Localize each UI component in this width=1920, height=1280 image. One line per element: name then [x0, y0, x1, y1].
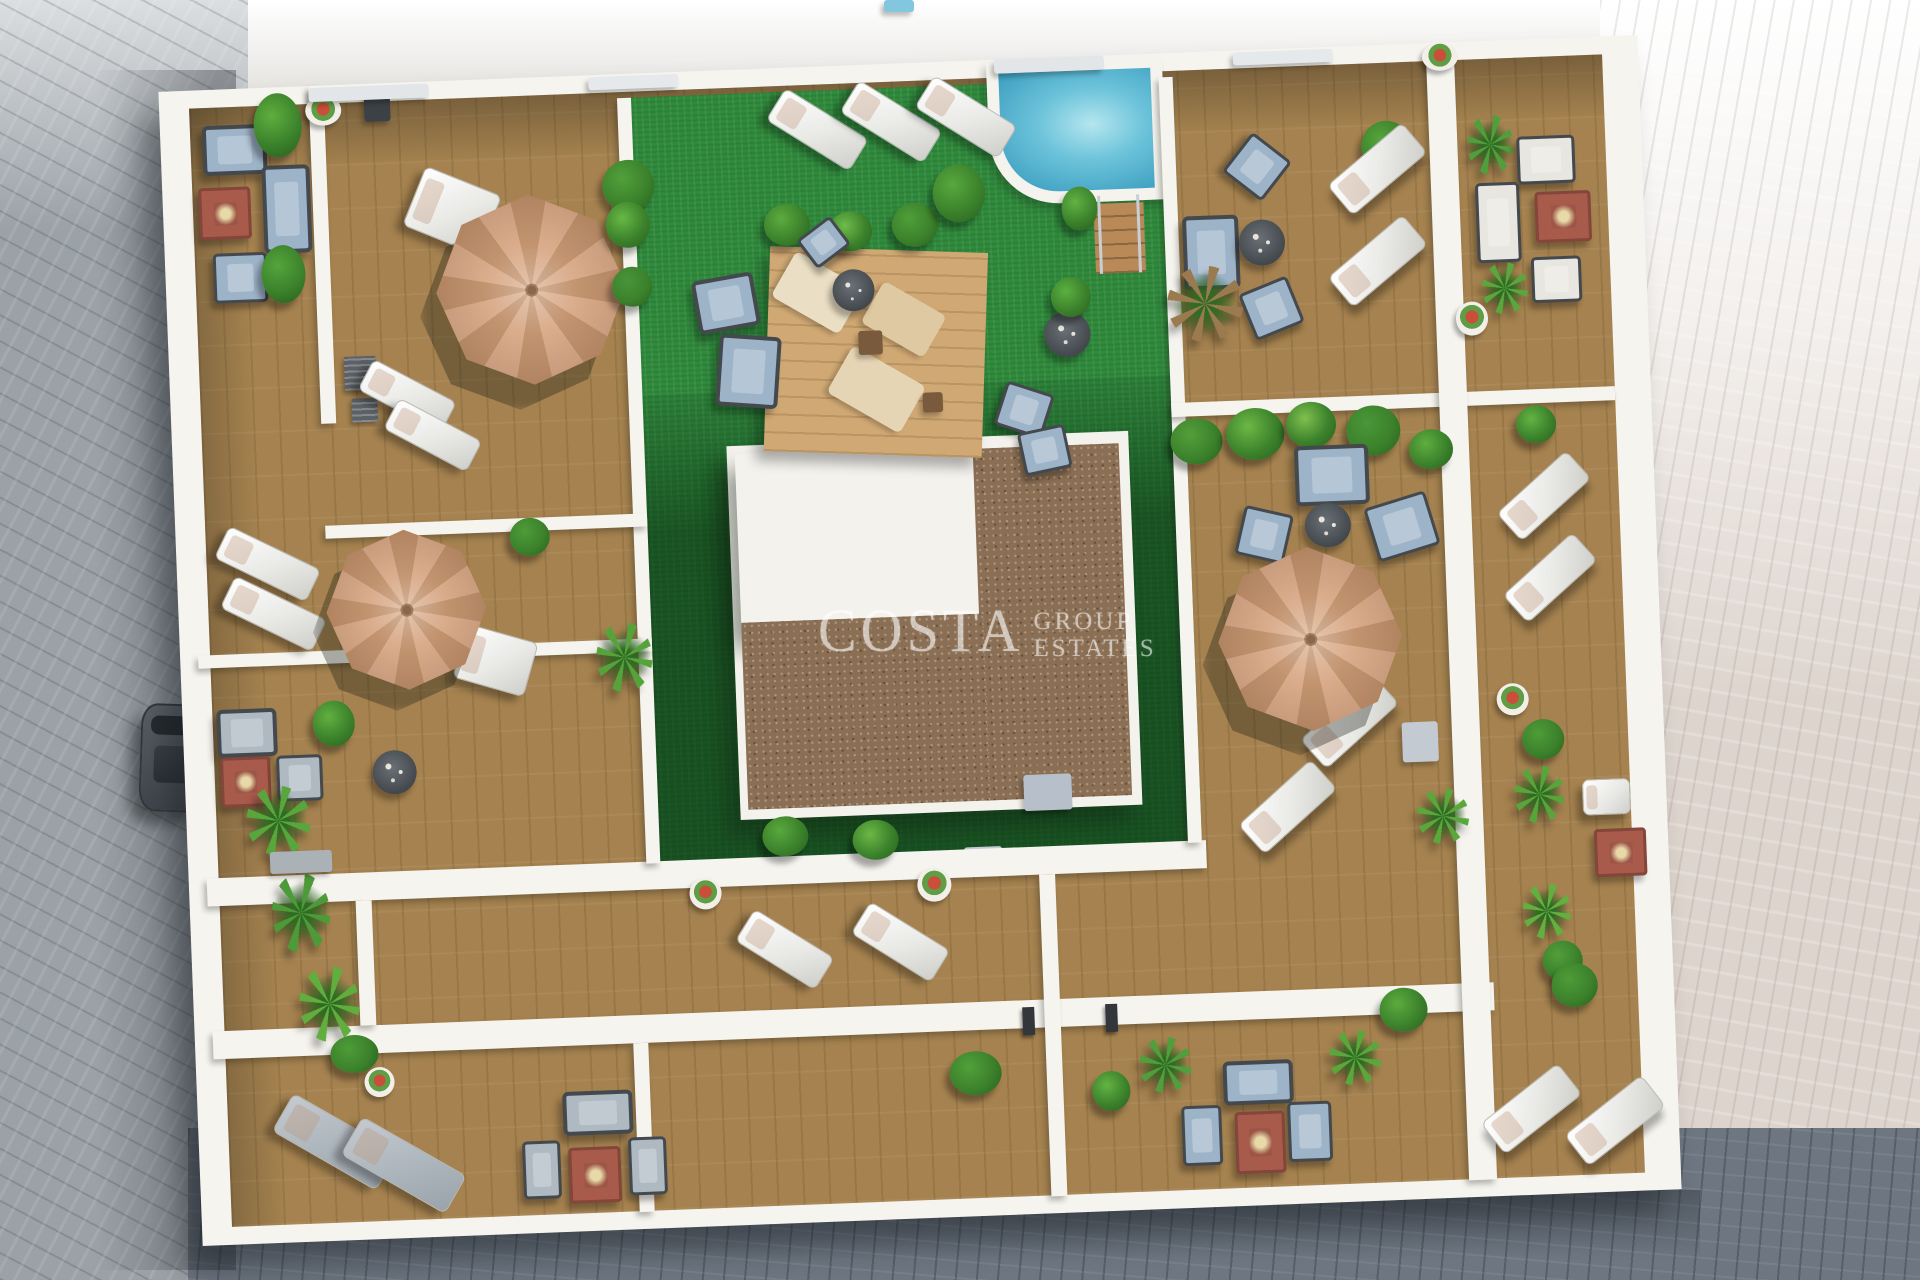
railing: [1233, 49, 1333, 66]
post: [1022, 1007, 1035, 1035]
parasol: [433, 191, 630, 388]
post: [1105, 1004, 1118, 1032]
platform-table: [922, 392, 943, 413]
armchair: [1516, 135, 1576, 185]
armchair: [522, 1140, 562, 1199]
side-table: [1402, 721, 1440, 762]
lounge-chair: [1582, 778, 1631, 816]
railing: [588, 74, 678, 90]
roof-gravel-east: [973, 443, 1132, 800]
platform-table: [858, 330, 883, 355]
garden-sofa: [562, 1089, 634, 1136]
garden-sofa: [715, 333, 782, 409]
armchair: [1181, 1105, 1223, 1166]
sky-reflection: [884, 0, 914, 12]
ac-unit: [1023, 773, 1072, 811]
armchair: [628, 1136, 668, 1195]
corner-sofa: [261, 164, 312, 254]
armchair: [213, 252, 269, 304]
roof-gravel-south: [741, 614, 990, 810]
garden-sofa: [691, 271, 762, 335]
garden-sofa: [1294, 444, 1370, 507]
armchair: [1531, 255, 1583, 303]
pool-steps: [1093, 202, 1146, 274]
fire-table: [198, 186, 252, 240]
fire-table: [1594, 827, 1648, 877]
pool-water: [998, 68, 1154, 194]
fire-table: [1234, 1110, 1286, 1174]
fire-table: [568, 1146, 622, 1204]
roof-slab: [735, 444, 994, 632]
parasol: [323, 527, 489, 693]
garden-sofa: [216, 708, 278, 758]
bench: [270, 850, 333, 874]
armchair: [1475, 182, 1522, 264]
fire-table: [1534, 190, 1592, 243]
parasol: [1215, 544, 1406, 735]
aerial-render: COSTA GROUP ESTATES: [0, 0, 1920, 1280]
rooftop-building: [158, 35, 1681, 1246]
wall-grill: [351, 398, 378, 423]
armchair: [1287, 1101, 1333, 1163]
garden-sofa: [1222, 1059, 1294, 1106]
